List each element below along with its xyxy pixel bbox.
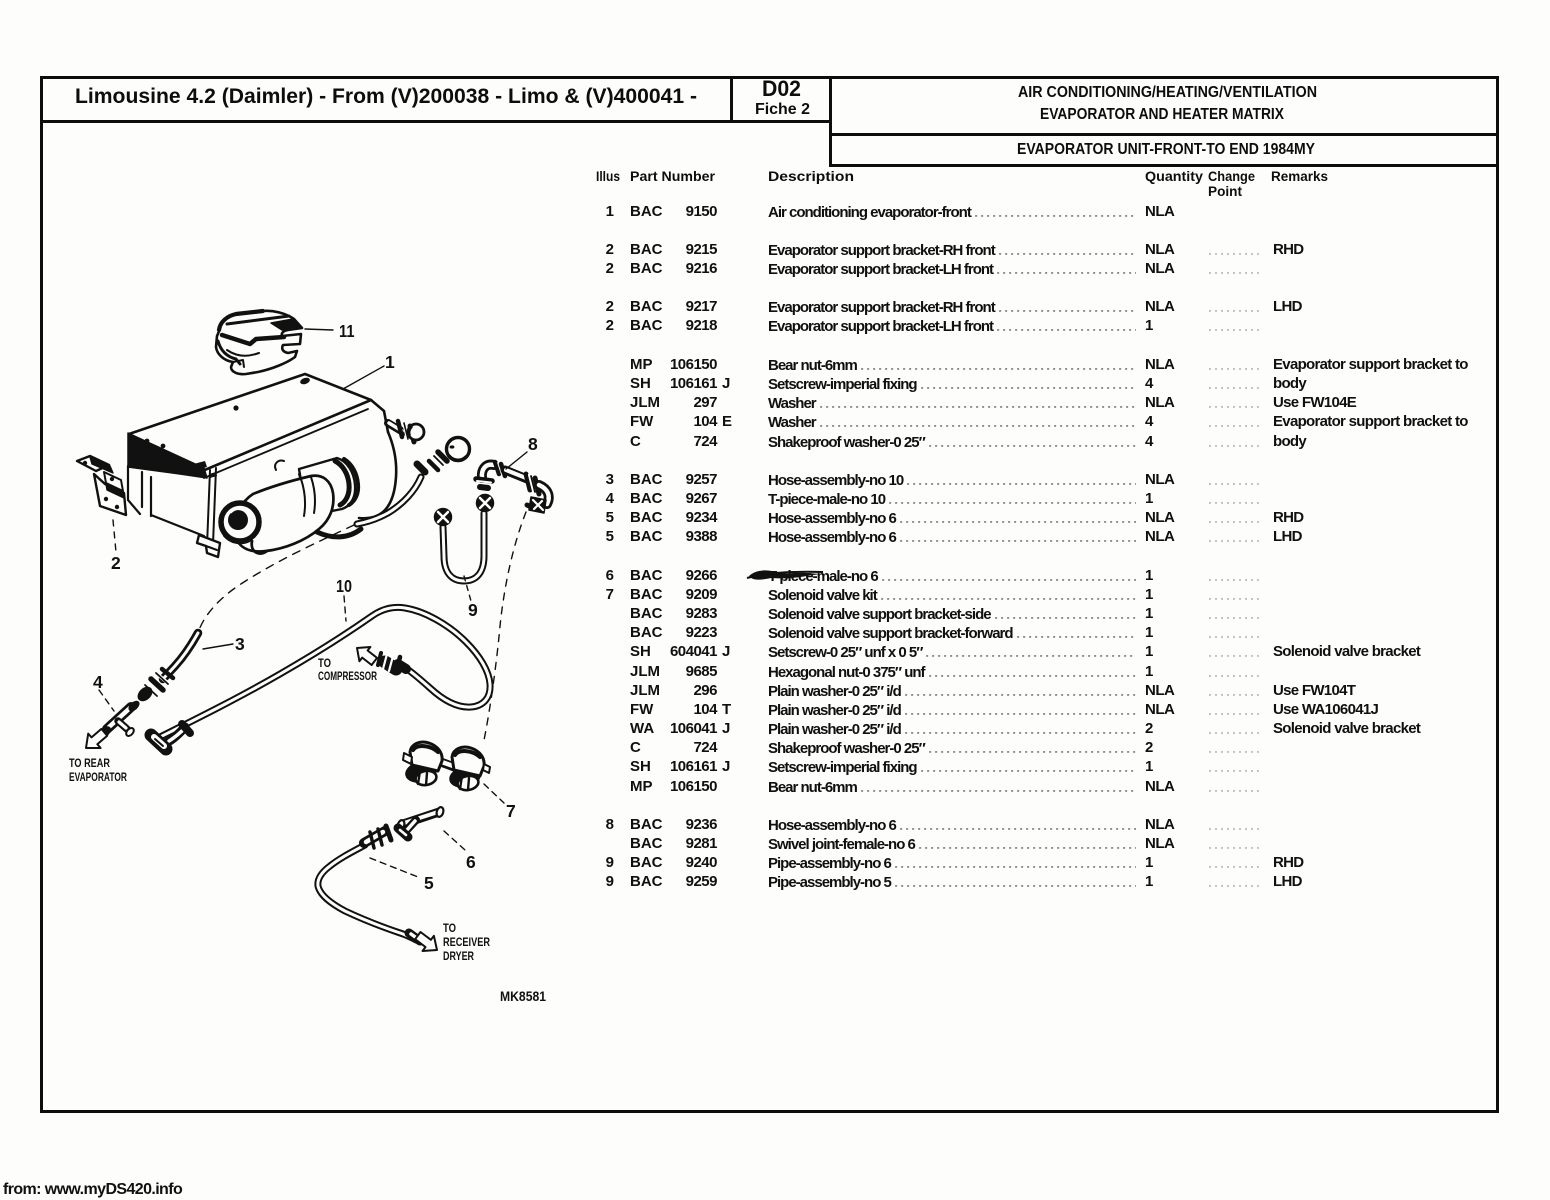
svg-text:11: 11 bbox=[339, 321, 355, 341]
svg-text:EVAPORATOR AND HEATER MATRIX: EVAPORATOR AND HEATER MATRIX bbox=[1040, 106, 1285, 123]
svg-text:DRYER: DRYER bbox=[443, 949, 474, 963]
svg-text:1: 1 bbox=[385, 352, 395, 372]
svg-text:8: 8 bbox=[528, 434, 538, 454]
svg-text:Point: Point bbox=[1208, 184, 1243, 199]
svg-text:TO: TO bbox=[443, 921, 456, 935]
svg-text:TO REAR: TO REAR bbox=[69, 756, 110, 770]
svg-text:Fiche 2: Fiche 2 bbox=[755, 101, 810, 118]
svg-text:MK8581: MK8581 bbox=[500, 989, 546, 1004]
svg-text:5: 5 bbox=[424, 873, 434, 893]
svg-text:Description: Description bbox=[768, 169, 854, 184]
svg-text:7: 7 bbox=[506, 801, 516, 821]
svg-text:Change: Change bbox=[1208, 169, 1255, 184]
svg-text:AIR CONDITIONING/HEATING/VENTI: AIR CONDITIONING/HEATING/VENTILATION bbox=[1018, 84, 1317, 101]
svg-text:3: 3 bbox=[235, 634, 245, 654]
svg-text:Remarks: Remarks bbox=[1271, 169, 1328, 184]
svg-text:Part Number: Part Number bbox=[630, 169, 716, 184]
svg-text:D02: D02 bbox=[762, 76, 801, 101]
svg-text:10: 10 bbox=[336, 576, 352, 596]
svg-text:6: 6 bbox=[466, 852, 476, 872]
svg-text:9: 9 bbox=[468, 600, 478, 620]
svg-text:EVAPORATOR: EVAPORATOR bbox=[69, 770, 127, 784]
svg-text:EVAPORATOR UNIT-FRONT-TO END 1: EVAPORATOR UNIT-FRONT-TO END 1984MY bbox=[1017, 141, 1316, 158]
svg-text:RECEIVER: RECEIVER bbox=[443, 935, 490, 949]
svg-text:COMPRESSOR: COMPRESSOR bbox=[318, 669, 377, 683]
svg-text:4: 4 bbox=[93, 672, 103, 692]
svg-text:2: 2 bbox=[111, 553, 121, 573]
svg-text:TO: TO bbox=[318, 656, 331, 670]
svg-text:Quantity: Quantity bbox=[1145, 169, 1204, 184]
